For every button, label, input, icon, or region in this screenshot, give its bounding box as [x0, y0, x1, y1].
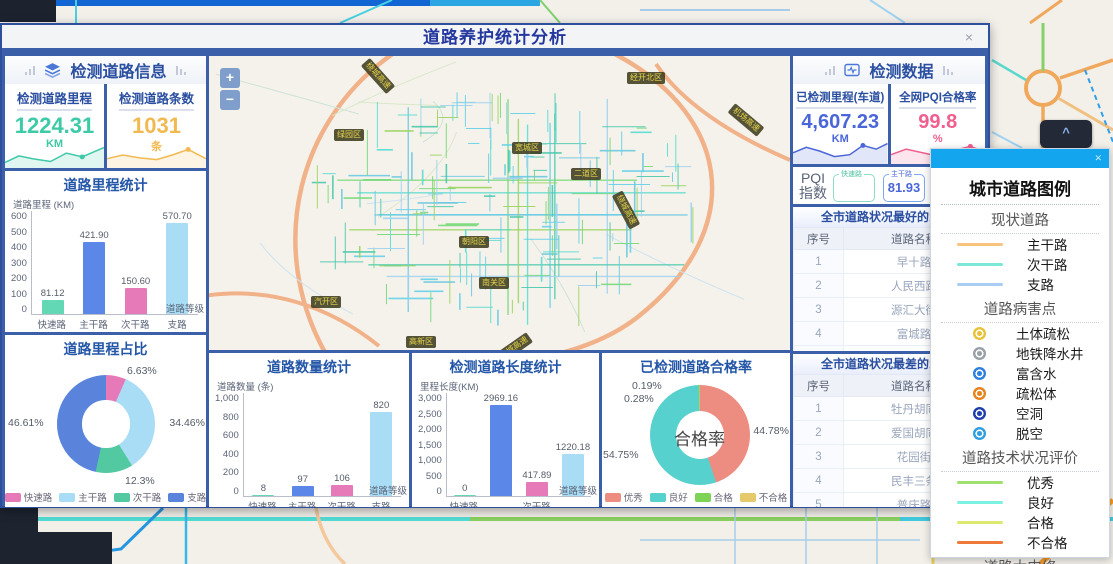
panel-qualified-donut: 已检测道路合格率 合格率 44.78% 54.75% 0.28% 0.19% 优…: [602, 353, 790, 507]
chart-title: 道路里程占比: [5, 335, 206, 359]
stat-value: 99.8: [891, 111, 986, 134]
stat-label: 检测道路里程: [17, 88, 92, 111]
stat-card-mileage: 检测道路里程 1224.31 KM: [5, 84, 104, 168]
x-axis-ticks: 快速路主干路次干路支路: [243, 497, 401, 507]
chart-title: 道路里程统计: [5, 171, 206, 195]
legend-line-swatch: [957, 263, 1003, 266]
map-district-label: 绿园区: [334, 129, 364, 141]
map-district-label: 二道区: [571, 168, 601, 180]
legend-line-swatch: [957, 521, 1003, 524]
legend-item: 土体疏松: [941, 323, 1099, 343]
bar: 2969.16: [484, 393, 519, 496]
bar-chart-count: 道路数量 (条) 1,0008006004002000 8 97 106 82: [209, 377, 409, 507]
legend-item: 优秀: [941, 472, 1099, 492]
section-title: 检测道路信息: [70, 58, 166, 82]
bar-chart-length: 里程长度(KM) 3,0002,5002,0001,5001,0005000 0…: [412, 377, 599, 507]
map-zoom-controls: + −: [220, 68, 240, 110]
legend-item: 不合格: [941, 532, 1099, 552]
legend-section-title: 道路大中修: [941, 552, 1099, 564]
x-axis-name: 道路等级: [369, 483, 407, 497]
legend-section-title: 道路病害点: [941, 294, 1099, 323]
bar-chart-mileage: 道路里程 (KM) 6005004003002001000 81.12 421.…: [5, 195, 206, 331]
legend-line-swatch: [957, 501, 1003, 504]
panel-count-bar-chart: 道路数量统计 道路数量 (条) 1,0008006004002000 8 97 …: [209, 353, 409, 507]
road-legend-panel: × 城市道路图例 现状道路主干路次干路支路道路病害点土体疏松地铁降水井富含水疏松…: [930, 148, 1110, 558]
disease-point-icon: [973, 367, 986, 380]
legend-item: 次干路: [114, 490, 162, 504]
legend-item: 主干路: [59, 490, 107, 504]
stat-card-count: 检测道路条数 1031 条: [107, 84, 206, 168]
pie-label: 34.46%: [169, 417, 205, 429]
bar: 820: [362, 393, 400, 496]
statistics-dialog: 道路养护统计分析 × 检测道路信息 检测道路里程: [0, 23, 990, 508]
chart-legend: 优秀 良好 合格 不合格: [602, 490, 790, 504]
panel-mileage-bar-chart: 道路里程统计 道路里程 (KM) 6005004003002001000 81.…: [5, 171, 206, 332]
legend-item-label: 优秀: [1027, 472, 1054, 492]
y-axis-ticks: 3,0002,5002,0001,5001,0005000: [418, 393, 446, 497]
disease-point-icon: [973, 407, 986, 420]
bar: 0: [448, 393, 483, 496]
legend-item-label: 富含水: [1016, 363, 1057, 383]
data-monitor-icon: [844, 63, 860, 77]
detection-data-header: 检测数据: [793, 56, 985, 84]
city-map[interactable]: + − 绿园区经开北区宽城区二道区朝阳区南关区汽开区高新区绕城高速绕城高速绕城高…: [209, 56, 790, 350]
legend-item: 良好: [650, 490, 688, 504]
legend-section-title: 道路技术状况评价: [941, 443, 1099, 472]
bar: 421.90: [74, 211, 114, 314]
pie-label: 44.78%: [753, 425, 789, 437]
legend-item: 支路: [168, 490, 206, 504]
legend-header[interactable]: ×: [931, 149, 1109, 168]
sparkline: [793, 138, 888, 164]
zoom-in-button[interactable]: +: [220, 68, 240, 88]
chart-legend: 快速路 主干路 次干路 支路: [5, 490, 206, 504]
header-ornament-right: [943, 66, 953, 75]
donut-chart-mileage-share: 6.63% 34.46% 12.3% 46.61% 快速路 主干路 次干路 支路: [5, 359, 206, 507]
legend-item: 支路: [941, 274, 1099, 294]
disease-point-icon: [973, 427, 986, 440]
legend-item: 地铁降水井: [941, 343, 1099, 363]
chevron-up-icon: ^: [1062, 125, 1070, 140]
close-icon[interactable]: ×: [1095, 150, 1102, 166]
legend-item-label: 疏松体: [1016, 383, 1057, 403]
panel-length-bar-chart: 检测道路长度统计 里程长度(KM) 3,0002,5002,0001,5001,…: [412, 353, 599, 507]
legend-title: 城市道路图例: [941, 170, 1099, 205]
chart-title: 检测道路长度统计: [412, 353, 599, 377]
legend-line-swatch: [957, 243, 1003, 246]
bar: 150.60: [116, 211, 156, 314]
dialog-body: 检测道路信息 检测道路里程 1224.31 KM 检测道路条数 1031 条: [5, 54, 985, 503]
disease-point-icon: [973, 347, 986, 360]
pqi-label: PQI 指数: [799, 171, 827, 201]
section-title: 检测数据: [869, 58, 933, 82]
stat-card-lane-mileage: 已检测里程(车道) 4,607.23 KM: [793, 84, 888, 164]
legend-item: 疏松体: [941, 383, 1099, 403]
legend-item-label: 主干路: [1027, 234, 1068, 254]
legend-item: 快速路: [5, 490, 52, 504]
road-info-header: 检测道路信息: [5, 56, 206, 84]
close-icon[interactable]: ×: [960, 29, 978, 47]
legend-item: 富含水: [941, 363, 1099, 383]
legend-item-label: 次干路: [1027, 254, 1068, 274]
stat-label: 全网PQI合格率: [899, 89, 976, 109]
legend-item-label: 地铁降水井: [1016, 343, 1084, 363]
stat-value: 1031: [107, 113, 206, 139]
x-axis-name: 道路等级: [559, 483, 597, 497]
y-axis-ticks: 6005004003002001000: [11, 211, 31, 315]
legend-item: 合格: [941, 512, 1099, 532]
collapse-chevron-button[interactable]: ^: [1040, 120, 1092, 148]
sparkline: [5, 142, 104, 168]
map-district-label: 高新区: [406, 336, 436, 348]
donut-chart-qualified-rate: 合格率 44.78% 54.75% 0.28% 0.19% 优秀 良好 合格 不…: [602, 377, 790, 507]
legend-item: 脱空: [941, 423, 1099, 443]
y-axis-label: 道路数量 (条): [217, 379, 401, 393]
bar: 106: [323, 393, 361, 496]
donut-ring: [57, 375, 155, 473]
app-topbar-fragment: [0, 0, 56, 22]
stat-value: 4,607.23: [793, 111, 888, 134]
map-district-label: 朝阳区: [459, 236, 489, 248]
legend-item: 空洞: [941, 403, 1099, 423]
legend-item-label: 不合格: [1027, 532, 1068, 552]
map-district-label: 汽开区: [311, 296, 341, 308]
pqi-box-1: 主干路81.93: [883, 174, 925, 202]
zoom-out-button[interactable]: −: [220, 90, 240, 110]
stat-label: 检测道路条数: [119, 88, 194, 111]
bar: 8: [245, 393, 283, 496]
legend-item-label: 空洞: [1016, 403, 1043, 423]
chart-title: 已检测道路合格率: [602, 353, 790, 377]
bar: 570.70: [157, 211, 197, 314]
pie-label: 6.63%: [127, 365, 157, 377]
chart-title: 道路数量统计: [209, 353, 409, 377]
bar: 81.12: [33, 211, 73, 314]
stat-label: 已检测里程(车道): [796, 89, 884, 109]
legend-item-label: 脱空: [1016, 423, 1043, 443]
x-axis-ticks: 快速路次干路: [446, 497, 591, 507]
legend-line-swatch: [957, 283, 1003, 286]
map-district-label: 经开北区: [627, 72, 665, 84]
y-axis-ticks: 1,0008006004002000: [215, 393, 243, 497]
legend-item: 主干路: [941, 234, 1099, 254]
map-district-label: 宽城区: [512, 142, 542, 154]
legend-item-label: 良好: [1027, 492, 1054, 512]
bar: 417.89: [520, 393, 555, 496]
pie-label: 0.28%: [624, 393, 654, 405]
screen: ^ 道路养护统计分析 × 检测道路信息: [0, 0, 1113, 564]
legend-item: 次干路: [941, 254, 1099, 274]
legend-item: 合格: [695, 490, 733, 504]
bar: 1220.18: [556, 393, 591, 496]
legend-item: 不合格: [740, 490, 788, 504]
y-axis-label: 里程长度(KM): [420, 379, 591, 393]
pie-label: 12.3%: [125, 475, 155, 487]
header-ornament-right: [176, 66, 186, 75]
pie-label: 54.75%: [603, 449, 639, 461]
header-ornament-left: [825, 66, 835, 75]
y-axis-label: 道路里程 (KM): [13, 197, 198, 211]
legend-section-title: 现状道路: [941, 205, 1099, 234]
column-header: 序号: [794, 228, 844, 250]
dialog-header: 道路养护统计分析 ×: [2, 25, 988, 51]
legend-item-label: 土体疏松: [1016, 323, 1070, 343]
pie-label: 46.61%: [8, 417, 44, 429]
pie-label: 0.19%: [632, 380, 662, 392]
donut-center-label: 合格率: [674, 425, 725, 450]
sparkline: [107, 142, 206, 168]
sidebar-fragment-2: [0, 532, 112, 564]
page-title: 道路养护统计分析: [2, 25, 988, 50]
bar: 97: [284, 393, 322, 496]
header-ornament-left: [25, 66, 35, 75]
legend-item-label: 支路: [1027, 274, 1054, 294]
legend-item: 优秀: [605, 490, 643, 504]
panel-mileage-donut: 道路里程占比 6.63% 34.46% 12.3% 46.61% 快速路 主干路…: [5, 335, 206, 507]
disease-point-icon: [973, 327, 986, 340]
column-header: 序号: [794, 375, 844, 397]
pqi-box-0: 快速路: [833, 174, 875, 202]
legend-item: 良好: [941, 492, 1099, 512]
stat-value: 1224.31: [5, 113, 104, 139]
disease-point-icon: [973, 387, 986, 400]
panel-road-info: 检测道路信息 检测道路里程 1224.31 KM 检测道路条数 1031 条: [5, 56, 206, 168]
legend-line-swatch: [957, 541, 1003, 544]
x-axis-ticks: 快速路主干路次干路支路: [31, 315, 198, 331]
map-district-label: 南关区: [479, 277, 509, 289]
layers-icon: [44, 63, 61, 78]
x-axis-name: 道路等级: [166, 301, 204, 315]
legend-line-swatch: [957, 481, 1003, 484]
legend-item-label: 合格: [1027, 512, 1054, 532]
map-streets: [209, 56, 790, 350]
